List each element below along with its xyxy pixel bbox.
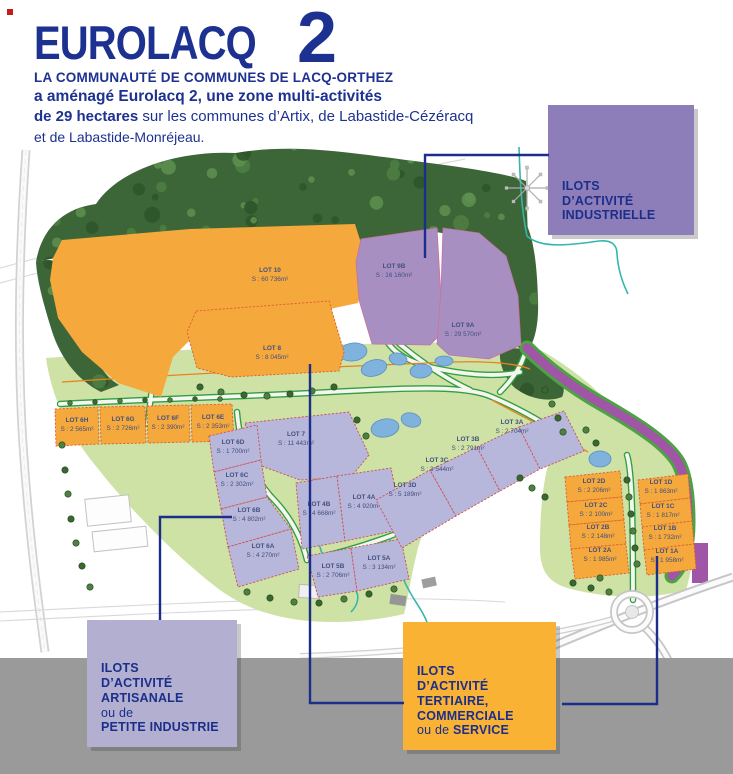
- tree: [624, 477, 630, 483]
- callout-tertiaire: ILOTSD’ACTIVITÉTERTIAIRE,COMMERCIALEou d…: [403, 622, 556, 750]
- tree: [549, 401, 555, 407]
- tree: [193, 397, 198, 402]
- tree: [118, 399, 123, 404]
- intro-line-1: a aménagé Eurolacq 2, une zone multi-act…: [34, 87, 473, 106]
- tree: [366, 591, 372, 597]
- subtitle: LA COMMUNAUTÉ DE COMMUNES DE LACQ-ORTHEZ: [34, 70, 473, 85]
- poster: LOT 10S : 60 736m²LOT 9BS : 16 160m²LOT …: [0, 0, 733, 774]
- tree: [291, 599, 297, 605]
- tree: [583, 427, 589, 433]
- tree: [244, 589, 250, 595]
- callout-tertiaire-label: ILOTSD’ACTIVITÉTERTIAIRE,COMMERCIALEou d…: [403, 664, 522, 750]
- tree: [354, 417, 360, 423]
- tree: [68, 401, 73, 406]
- lot-shape-lot-9b: [356, 228, 443, 345]
- tree: [287, 391, 293, 397]
- tree: [316, 600, 322, 606]
- tree: [79, 563, 85, 569]
- tree: [309, 388, 315, 394]
- tree: [73, 540, 79, 546]
- tree: [267, 595, 273, 601]
- tree: [626, 494, 632, 500]
- tree: [68, 516, 74, 522]
- tree: [632, 545, 638, 551]
- tree: [218, 397, 223, 402]
- callout-artisanale-label: ILOTSD’ACTIVITÉARTISANALEou dePETITE IND…: [87, 661, 227, 747]
- tree: [391, 586, 397, 592]
- tree: [570, 580, 576, 586]
- tree: [529, 485, 535, 491]
- header: EUROLACQ 2 LA COMMUNAUTÉ DE COMMUNES DE …: [34, 10, 473, 147]
- intro-line-2: de 29 hectares sur les communes d’Artix,…: [34, 108, 473, 127]
- tree: [93, 400, 98, 405]
- tree: [555, 415, 561, 421]
- tree: [634, 561, 640, 567]
- tree: [542, 387, 548, 393]
- tree: [628, 511, 634, 517]
- tree: [197, 384, 203, 390]
- tree: [341, 596, 347, 602]
- callout-artisanale: ILOTSD’ACTIVITÉARTISANALEou dePETITE IND…: [87, 620, 237, 747]
- tree: [87, 584, 93, 590]
- tree: [606, 589, 612, 595]
- pond: [435, 356, 453, 366]
- tree: [542, 494, 548, 500]
- logo-eurolacq: EUROLACQ: [34, 19, 256, 66]
- tree: [143, 398, 148, 403]
- tree: [560, 429, 566, 435]
- tree: [588, 585, 594, 591]
- tree: [62, 467, 68, 473]
- tree: [241, 392, 247, 398]
- pond: [589, 451, 611, 467]
- logo: EUROLACQ 2: [34, 10, 473, 68]
- tree: [65, 491, 71, 497]
- callout-industrielle: ILOTSD’ACTIVITÉINDUSTRIELLE: [548, 105, 694, 235]
- tree: [363, 433, 369, 439]
- corner-marker: [7, 9, 13, 15]
- tree: [218, 389, 224, 395]
- tree: [597, 575, 603, 581]
- tree: [264, 393, 270, 399]
- tree: [59, 442, 65, 448]
- tree: [331, 384, 337, 390]
- lot-shape-lot-8: [187, 301, 344, 377]
- tree: [630, 528, 636, 534]
- tree: [168, 398, 173, 403]
- callout-industrielle-label: ILOTSD’ACTIVITÉINDUSTRIELLE: [548, 179, 663, 235]
- tree: [593, 440, 599, 446]
- tree: [517, 475, 523, 481]
- logo-number-2: 2: [297, 10, 337, 68]
- intro-line-3: et de Labastide-Monréjeau.: [34, 129, 473, 147]
